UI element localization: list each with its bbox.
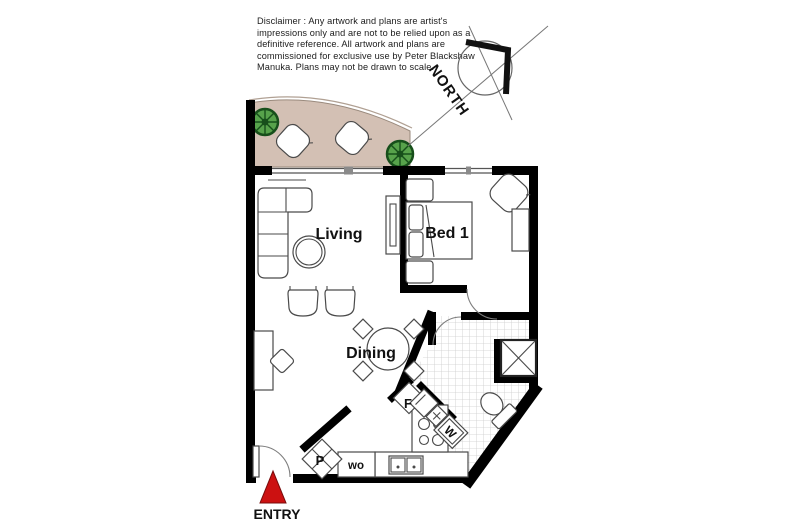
dining-chair xyxy=(353,361,373,381)
top-wall-living-left xyxy=(246,166,272,175)
balcony xyxy=(249,97,413,167)
armchair xyxy=(288,286,318,316)
north-compass: NORTH xyxy=(408,26,548,146)
dining-label: Dining xyxy=(346,345,396,362)
bed1-label: Bed 1 xyxy=(425,225,469,242)
armchair xyxy=(325,286,355,316)
bedside-table xyxy=(406,261,433,283)
hall-wall xyxy=(461,312,537,320)
shower xyxy=(501,340,536,376)
window-living xyxy=(272,167,383,175)
floor-plan-page: Disclaimer : Any artwork and plans are a… xyxy=(0,0,790,527)
wall-oven-label: wo xyxy=(347,460,364,472)
fridge-label: F xyxy=(404,396,412,411)
living-label: Living xyxy=(315,226,362,243)
left-wall xyxy=(246,100,255,483)
bedside-table xyxy=(406,179,433,201)
tv-unit xyxy=(386,196,400,254)
plant-icon xyxy=(252,109,278,135)
entry-label: ENTRY xyxy=(254,506,302,522)
entry-door-arc xyxy=(259,446,290,477)
north-arrow-icon xyxy=(466,42,508,94)
dresser xyxy=(512,209,529,251)
floor-plan-svg: NORTH xyxy=(0,0,790,527)
bed1-bottom-wall xyxy=(400,285,467,293)
entry-arrow-icon xyxy=(260,471,286,503)
top-wall-bed1-right xyxy=(492,166,538,175)
dining-chair xyxy=(353,319,373,339)
top-wall-center xyxy=(383,166,445,175)
entry xyxy=(253,446,290,503)
entry-door-leaf xyxy=(253,446,259,477)
pantry-diagonal-wall xyxy=(305,411,346,447)
kitchen-sink xyxy=(389,456,423,474)
window-bed1 xyxy=(445,167,492,175)
pantry-label: P xyxy=(316,453,325,468)
